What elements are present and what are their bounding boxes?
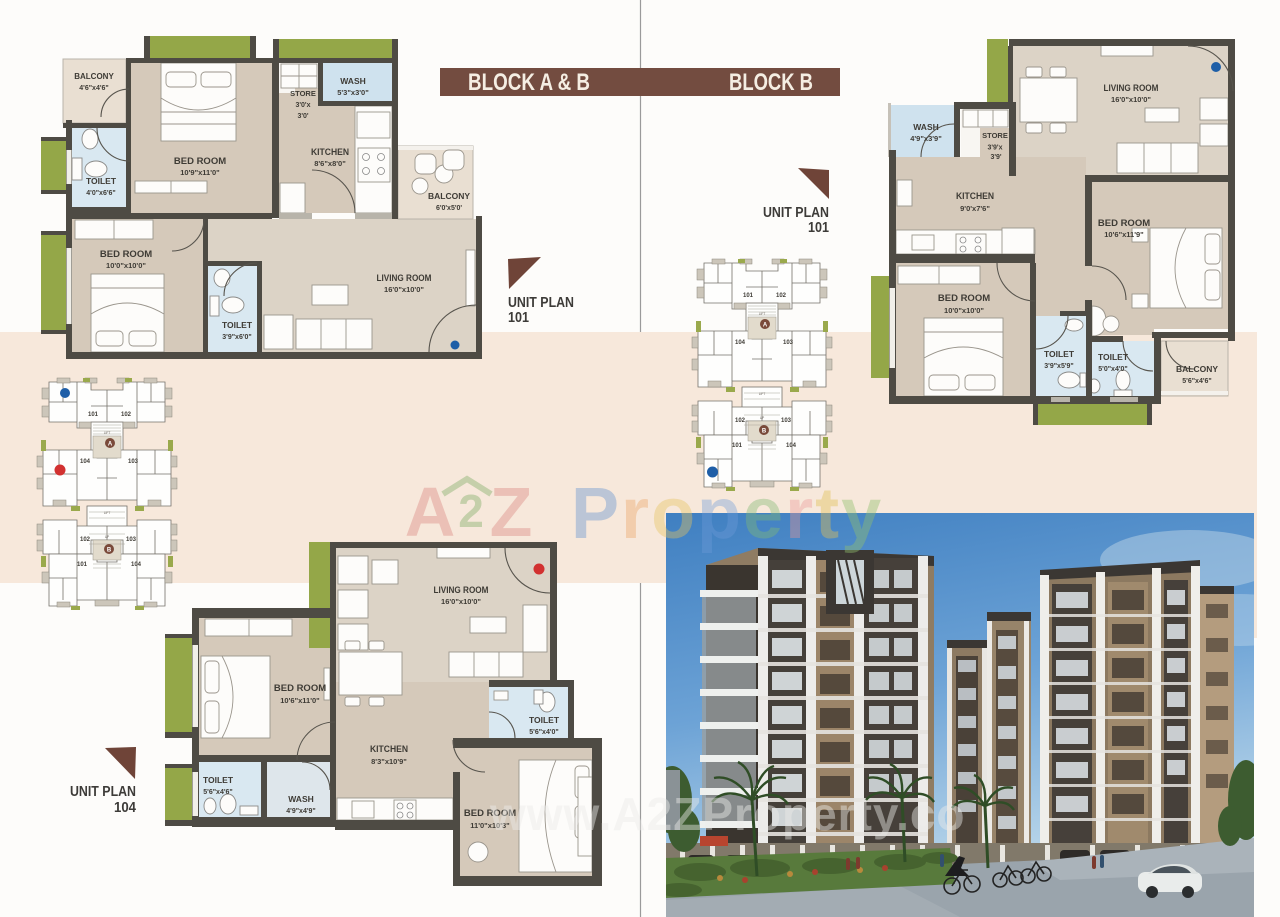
svg-text:KITCHEN: KITCHEN	[370, 744, 408, 755]
svg-text:4'9"x4'9": 4'9"x4'9"	[286, 808, 315, 815]
svg-text:TOILET: TOILET	[1044, 349, 1075, 359]
svg-text:BED ROOM: BED ROOM	[174, 156, 226, 167]
svg-text:8'6"x8'0": 8'6"x8'0"	[314, 159, 346, 168]
svg-text:TOILET: TOILET	[203, 775, 234, 785]
svg-text:2: 2	[458, 485, 484, 537]
svg-text:10'9"x11'0": 10'9"x11'0"	[180, 168, 220, 177]
svg-text:4'0"x6'6": 4'0"x6'6"	[86, 190, 115, 197]
svg-text:10'6"x11'0": 10'6"x11'0"	[280, 696, 320, 705]
svg-text:6'0'x5'0': 6'0'x5'0'	[436, 205, 462, 212]
svg-text:STORE: STORE	[290, 89, 316, 98]
svg-text:BED ROOM: BED ROOM	[1098, 218, 1150, 229]
svg-text:BLOCK A & B: BLOCK A & B	[468, 69, 590, 96]
svg-text:WASH: WASH	[288, 794, 314, 804]
svg-text:BALCONY: BALCONY	[1176, 364, 1218, 374]
svg-text:BED ROOM: BED ROOM	[100, 249, 152, 260]
svg-text:TOILET: TOILET	[529, 715, 560, 725]
svg-text:Property: Property	[571, 474, 883, 554]
svg-text:3'0'x: 3'0'x	[295, 102, 310, 109]
svg-text:4'9"x3'9": 4'9"x3'9"	[910, 134, 942, 143]
svg-text:5'6"x4'6": 5'6"x4'6"	[1182, 378, 1211, 385]
svg-text:3'9"x5'9": 3'9"x5'9"	[1044, 363, 1073, 370]
svg-text:10'0"x10'0": 10'0"x10'0"	[106, 261, 146, 270]
svg-text:5'6"x4'6": 5'6"x4'6"	[203, 789, 232, 796]
svg-text:STORE: STORE	[982, 131, 1008, 140]
svg-text:3'9': 3'9'	[990, 154, 1001, 161]
svg-text:3'9'x: 3'9'x	[987, 145, 1002, 152]
svg-text:KITCHEN: KITCHEN	[311, 147, 349, 158]
svg-text:BALCONY: BALCONY	[74, 72, 114, 81]
svg-text:LIVING ROOM: LIVING ROOM	[377, 273, 432, 284]
svg-text:KITCHEN: KITCHEN	[956, 191, 994, 202]
svg-text:5'0"x4'0": 5'0"x4'0"	[1098, 366, 1127, 373]
svg-text:16'0"x10'0": 16'0"x10'0"	[1111, 95, 1151, 104]
svg-text:4'6"x4'6": 4'6"x4'6"	[79, 85, 108, 92]
svg-text:101: 101	[508, 309, 529, 326]
svg-text:5'3"x3'0": 5'3"x3'0"	[337, 88, 369, 97]
svg-text:BALCONY: BALCONY	[428, 191, 470, 201]
svg-text:10'0"x10'0": 10'0"x10'0"	[944, 306, 984, 315]
svg-text:5'6"x4'0": 5'6"x4'0"	[529, 729, 558, 736]
svg-text:UNIT PLAN: UNIT PLAN	[70, 783, 136, 800]
svg-text:A: A	[405, 473, 456, 551]
svg-text:www.A2ZProperty.co: www.A2ZProperty.co	[489, 788, 966, 840]
svg-text:16'0"x10'0": 16'0"x10'0"	[441, 597, 481, 606]
svg-text:8'3"x10'9": 8'3"x10'9"	[371, 757, 407, 766]
svg-text:LIVING ROOM: LIVING ROOM	[434, 585, 489, 596]
svg-text:10'6"x11'9": 10'6"x11'9"	[1104, 230, 1144, 239]
svg-text:16'0"x10'0": 16'0"x10'0"	[384, 285, 424, 294]
svg-text:BED ROOM: BED ROOM	[938, 293, 990, 304]
svg-text:BLOCK B: BLOCK B	[729, 69, 813, 96]
svg-text:3'9"x6'0": 3'9"x6'0"	[222, 334, 251, 341]
svg-text:WASH: WASH	[340, 76, 366, 86]
svg-text:WASH: WASH	[913, 122, 939, 132]
svg-text:104: 104	[114, 799, 137, 816]
svg-text:TOILET: TOILET	[1098, 352, 1129, 362]
svg-text:BED ROOM: BED ROOM	[274, 683, 326, 694]
svg-text:Z: Z	[490, 473, 533, 551]
svg-text:3'0': 3'0'	[297, 113, 308, 120]
svg-text:TOILET: TOILET	[222, 320, 253, 330]
svg-text:101: 101	[808, 219, 829, 236]
svg-text:9'0'x7'6": 9'0'x7'6"	[960, 204, 990, 213]
svg-text:TOILET: TOILET	[86, 176, 117, 186]
svg-text:LIVING ROOM: LIVING ROOM	[1104, 83, 1159, 94]
